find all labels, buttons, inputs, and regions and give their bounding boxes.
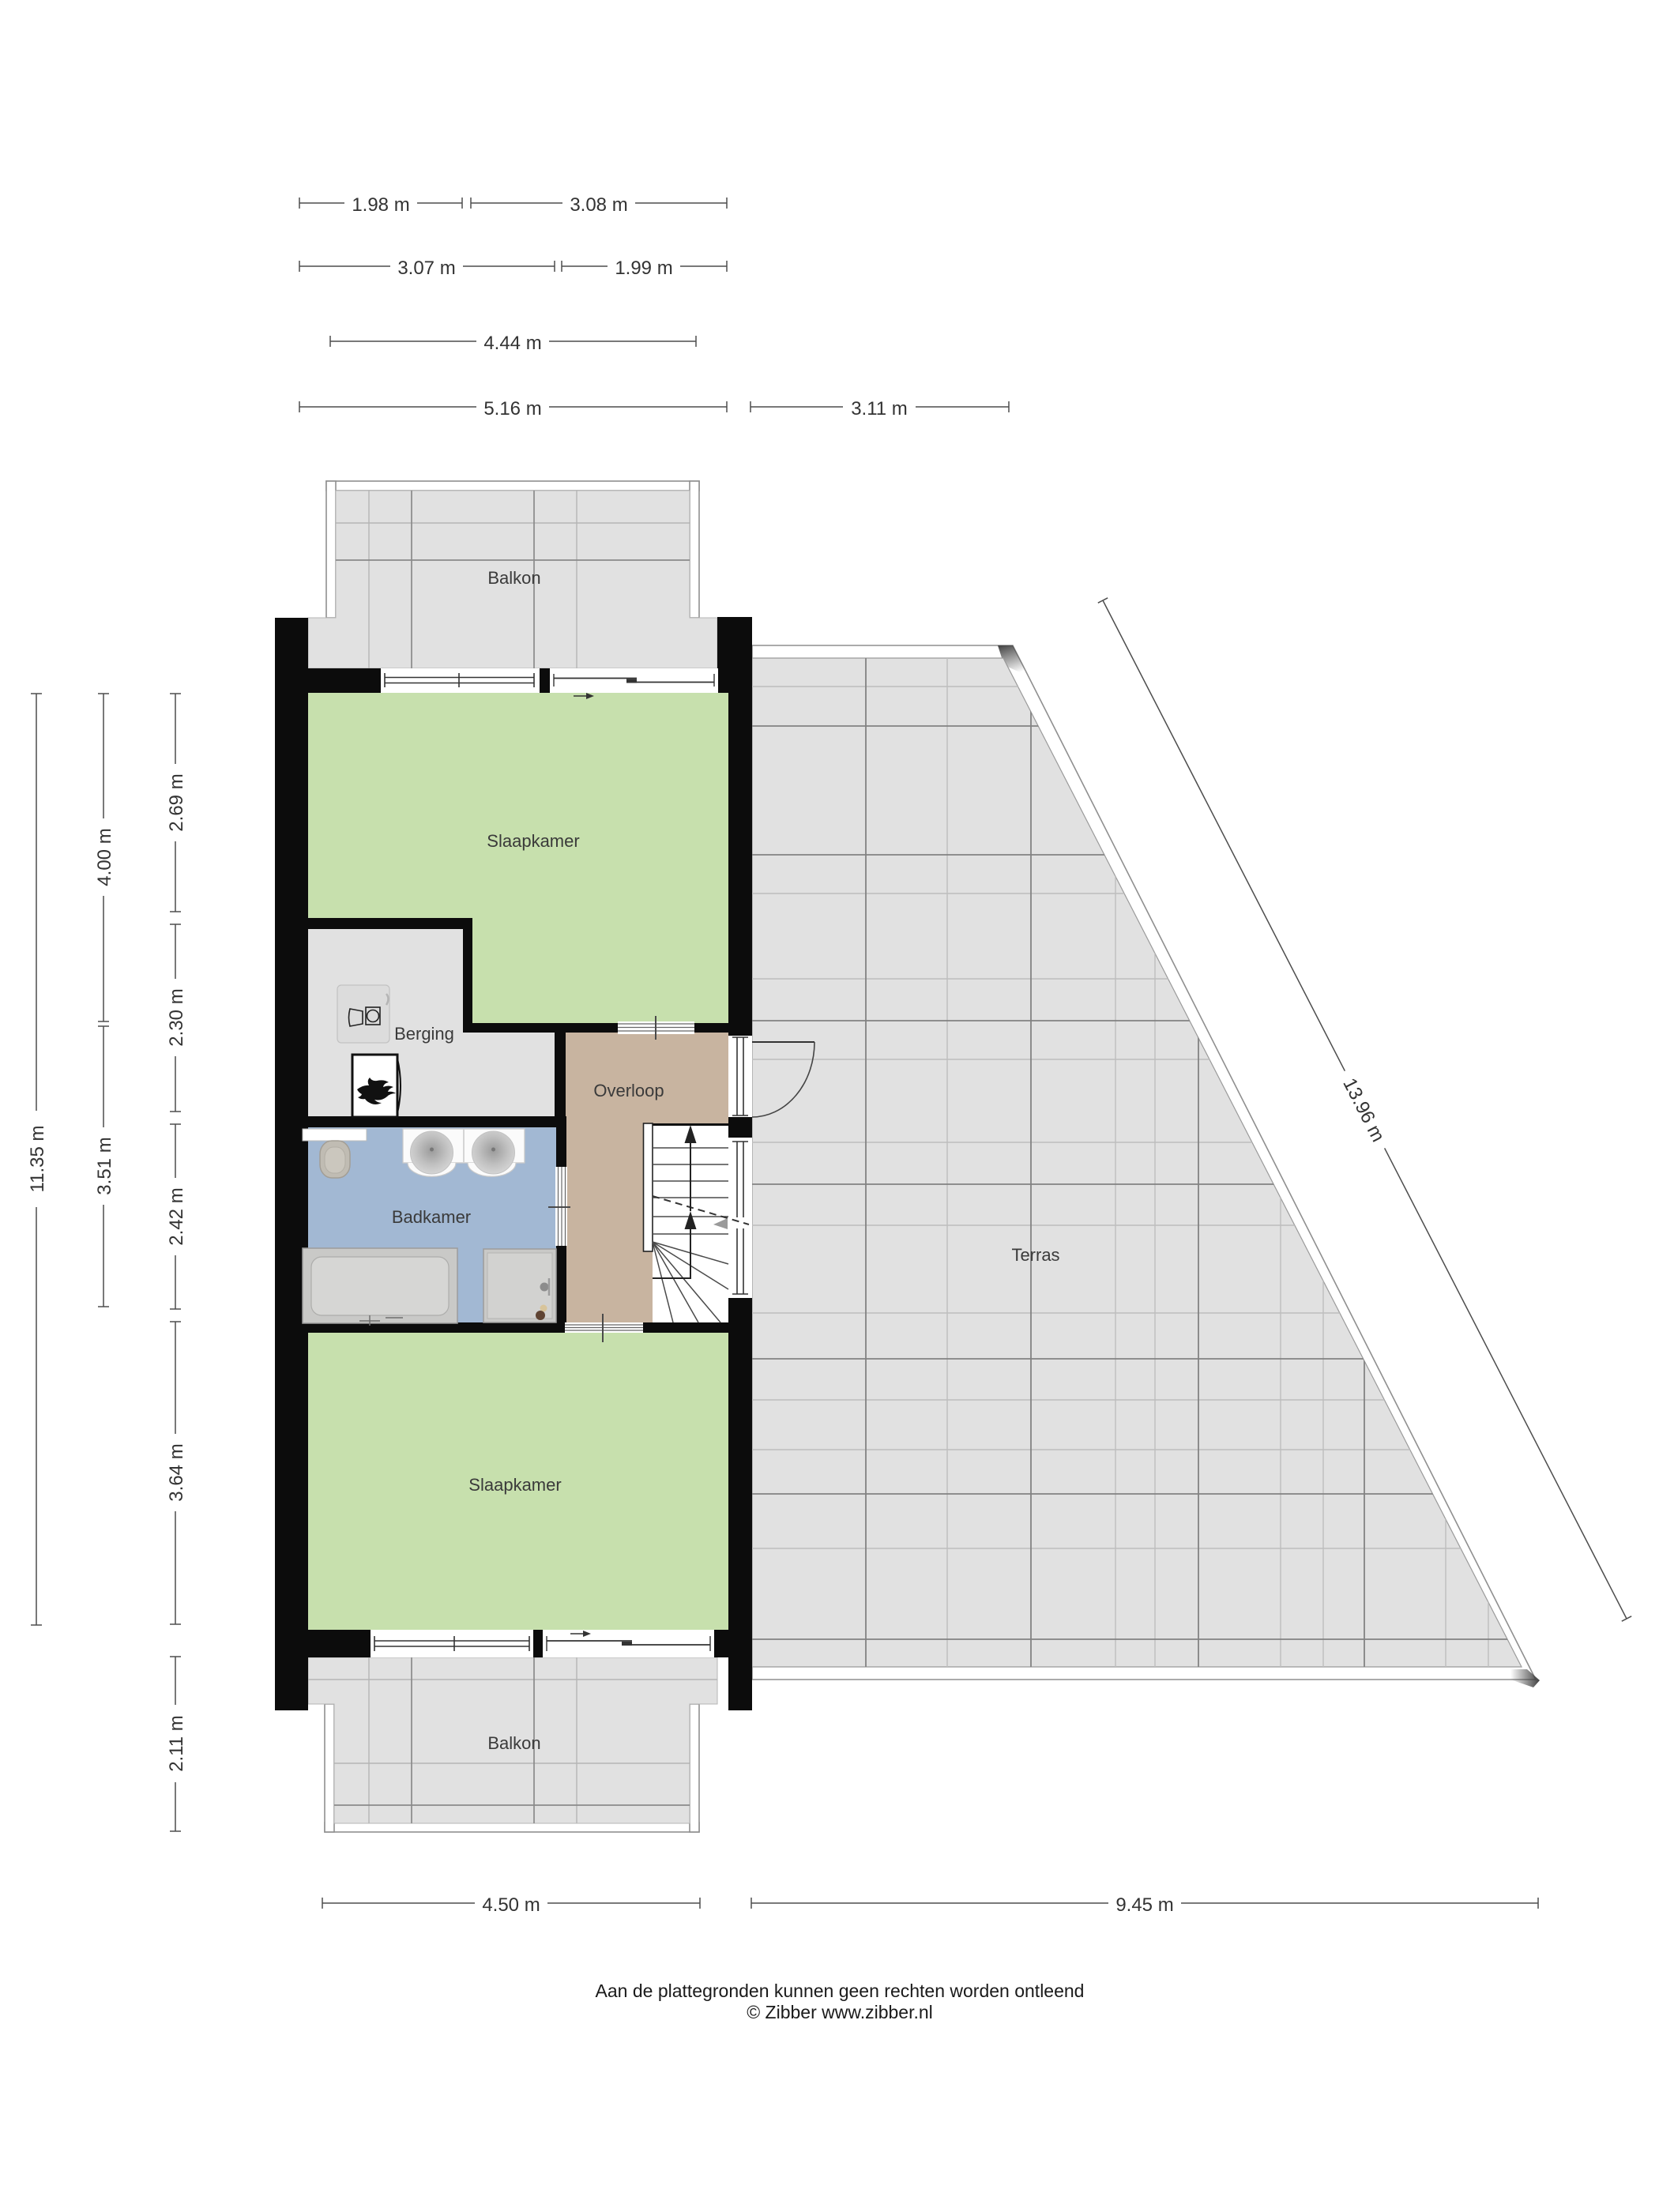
svg-text:3.08 m: 3.08 m [570,194,627,216]
svg-text:Slaapkamer: Slaapkamer [468,1475,561,1495]
svg-text:1.99 m: 1.99 m [615,258,672,279]
svg-text:Badkamer: Badkamer [392,1207,471,1227]
svg-text:4.44 m: 4.44 m [483,333,541,354]
svg-text:5.16 m: 5.16 m [483,398,541,419]
svg-text:4.50 m: 4.50 m [482,1894,540,1916]
svg-text:2.11 m: 2.11 m [166,1715,187,1772]
svg-text:9.45 m: 9.45 m [1115,1894,1173,1916]
svg-text:4.00 m: 4.00 m [94,828,115,886]
svg-text:Aan de plattegronden kunnen ge: Aan de plattegronden kunnen geen rechten… [596,1981,1085,2001]
svg-text:Berging: Berging [394,1024,454,1044]
svg-text:3.07 m: 3.07 m [397,258,455,279]
svg-text:2.42 m: 2.42 m [166,1187,187,1245]
svg-text:© Zibber www.zibber.nl: © Zibber www.zibber.nl [747,2002,933,2022]
svg-text:Balkon: Balkon [487,1733,540,1753]
svg-text:Overloop: Overloop [593,1081,664,1100]
svg-text:2.30 m: 2.30 m [166,988,187,1046]
svg-text:3.64 m: 3.64 m [166,1443,187,1501]
svg-text:Terras: Terras [1011,1245,1059,1265]
svg-text:Balkon: Balkon [487,568,540,588]
svg-text:2.69 m: 2.69 m [166,773,187,831]
svg-text:Slaapkamer: Slaapkamer [487,831,579,851]
svg-text:3.11 m: 3.11 m [851,398,908,419]
svg-text:11.35 m: 11.35 m [27,1126,48,1193]
svg-text:1.98 m: 1.98 m [352,194,409,216]
svg-text:3.51 m: 3.51 m [94,1137,115,1194]
